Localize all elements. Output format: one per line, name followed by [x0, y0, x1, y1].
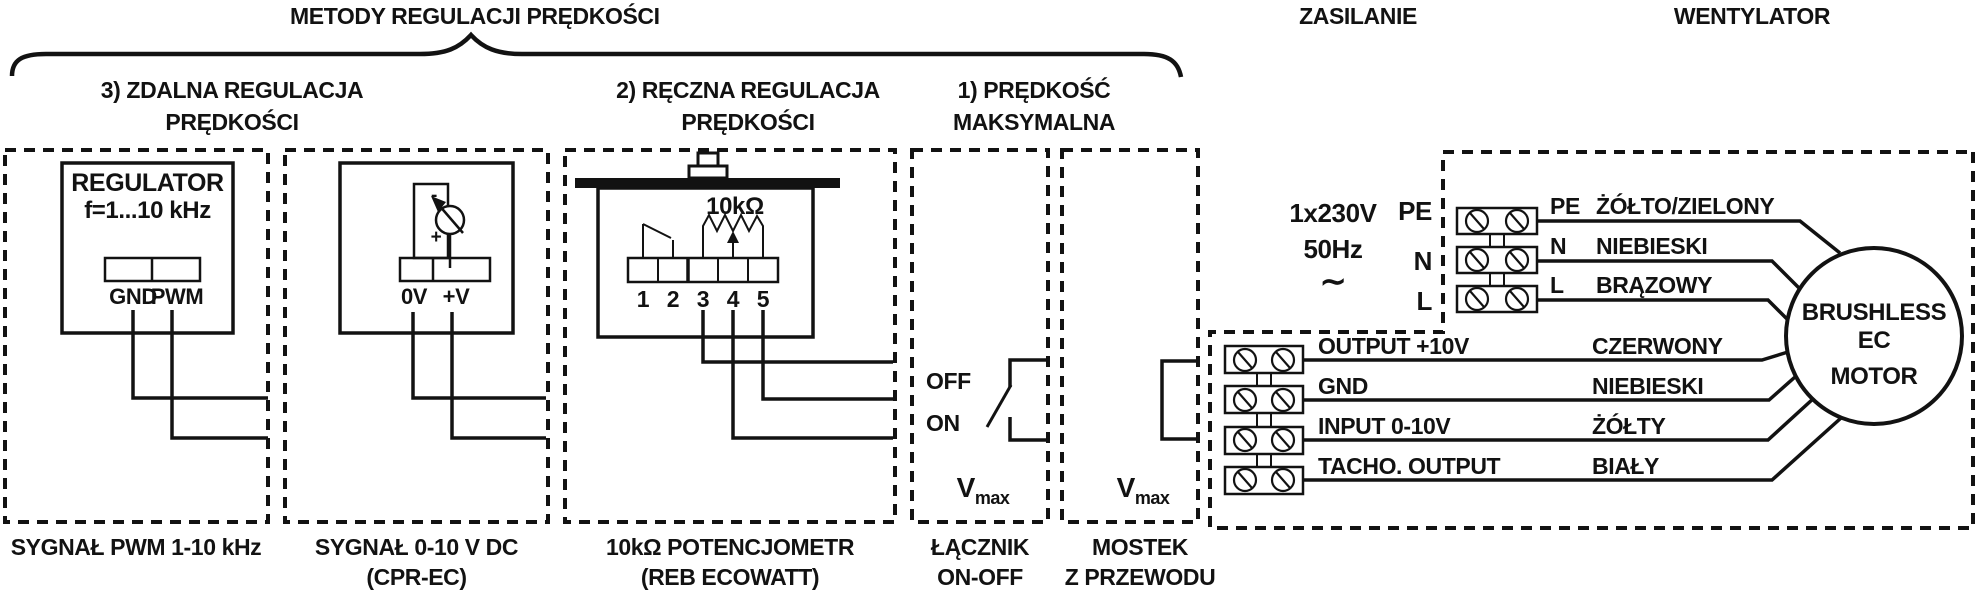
switch-method-box — [912, 150, 1048, 522]
caption-dc-2: (CPR-EC) — [285, 565, 548, 589]
zasilanie-label: ZASILANIE — [1288, 4, 1428, 28]
jumper-bracket — [1162, 361, 1198, 439]
input010v-label: INPUT 0-10V — [1318, 414, 1450, 438]
power-terminal-strip — [1457, 208, 1537, 312]
l-wire-color: BRĄZOWY — [1596, 273, 1712, 297]
dc-method-box — [285, 150, 548, 522]
switch-top-contact — [1010, 360, 1046, 387]
motor-line-3: MOTOR — [1784, 364, 1964, 389]
diagram-title: METODY REGULACJI PRĘDKOŚCI — [290, 4, 656, 28]
gnd-signal-label: GND — [1318, 374, 1368, 398]
plus-v-wire — [452, 312, 546, 438]
regulator-label: REGULATOR — [64, 170, 231, 196]
pot-terminal-2: 2 — [663, 287, 683, 311]
pot-switch-blade — [643, 224, 671, 238]
zero-v-wire — [413, 312, 546, 398]
pwm-terminal-label: PWM — [146, 285, 208, 308]
switch-off-label: OFF — [926, 369, 971, 393]
n-wire-color: NIEBIESKI — [1596, 234, 1707, 258]
motor-line-1: BRUSHLESS — [1784, 300, 1964, 325]
caption-switch-1: ŁĄCZNIK — [912, 535, 1048, 559]
pe-wire-color: ŻÓŁTO/ZIELONY — [1596, 194, 1774, 218]
switch-vmax-label: Vmax — [930, 473, 1036, 502]
regulator-freq: f=1...10 kHz — [64, 198, 231, 223]
caption-pot-2: (REB ECOWATT) — [565, 565, 895, 589]
pe-label: PE — [1372, 198, 1432, 225]
power-terminal-screws — [1466, 210, 1528, 310]
caption-pot-1: 10kΩ POTENCJOMETR — [565, 535, 895, 559]
l-wire — [1537, 300, 1789, 321]
pot-terminal-3: 3 — [693, 287, 713, 311]
plusv-terminal-label: +V — [428, 285, 484, 308]
input010v-color: ŻÓŁTY — [1592, 414, 1665, 438]
tacho-label: TACHO. OUTPUT — [1318, 454, 1500, 478]
caption-switch-2: ON-OFF — [912, 565, 1048, 589]
tacho-color: BIAŁY — [1592, 454, 1659, 478]
caption-jumper-2: Z PRZEWODU — [1040, 565, 1240, 589]
pe-wire-terminal: PE — [1550, 194, 1580, 218]
source-plus: + — [426, 228, 446, 248]
signal-terminal-screws — [1234, 349, 1294, 491]
heading-remote-1: 3) ZDALNA REGULACJA — [92, 78, 372, 102]
pot-terminal-1: 1 — [633, 287, 653, 311]
gnd-signal-color: NIEBIESKI — [1592, 374, 1703, 398]
jumper-vmax-label: Vmax — [1090, 473, 1196, 502]
heading-remote-2: PRĘDKOŚCI — [92, 110, 372, 134]
wiring-diagram: METODY REGULACJI PRĘDKOŚCI ZASILANIE WEN… — [0, 0, 1983, 594]
gnd-signal-wire — [1303, 377, 1795, 400]
switch-on-label: ON — [926, 411, 960, 435]
wentylator-label: WENTYLATOR — [1662, 4, 1842, 28]
caption-pwm: SYGNAŁ PWM 1-10 kHz — [0, 535, 272, 559]
pot-terminal-block — [628, 258, 778, 282]
switch-bottom-contact — [1010, 417, 1046, 440]
caption-jumper-1: MOSTEK — [1040, 535, 1240, 559]
source-minus: - — [424, 186, 444, 206]
methods-brace — [12, 35, 1181, 77]
l-wire-terminal: L — [1550, 273, 1564, 297]
heading-max-1: 1) PRĘDKOŚĆ — [894, 78, 1174, 102]
pot-wire-5 — [763, 310, 893, 399]
pot-terminal-5: 5 — [753, 287, 773, 311]
heading-max-2: MAKSYMALNA — [894, 110, 1174, 134]
gnd-wire — [133, 310, 268, 398]
pot-knob-top — [698, 153, 718, 166]
pot-value-label: 10kΩ — [695, 194, 775, 219]
output10v-color: CZERWONY — [1592, 334, 1723, 358]
dc-terminal-block — [400, 258, 490, 281]
motor-line-2: EC — [1784, 328, 1964, 353]
output10v-label: OUTPUT +10V — [1318, 334, 1469, 358]
n-wire-terminal: N — [1550, 234, 1566, 258]
l-label: L — [1372, 288, 1432, 315]
jumper-method-box — [1062, 150, 1198, 522]
pot-wiper-arrow — [727, 231, 739, 243]
caption-dc-1: SYGNAŁ 0-10 V DC — [285, 535, 548, 559]
pot-terminal-4: 4 — [723, 287, 743, 311]
n-label: N — [1372, 248, 1432, 275]
pot-knob-base — [689, 166, 727, 178]
heading-manual-2: PRĘDKOŚCI — [608, 110, 888, 134]
switch-blade — [987, 385, 1011, 427]
heading-manual-1: 2) RĘCZNA REGULACJA — [608, 78, 888, 102]
pwm-wire — [172, 310, 268, 438]
